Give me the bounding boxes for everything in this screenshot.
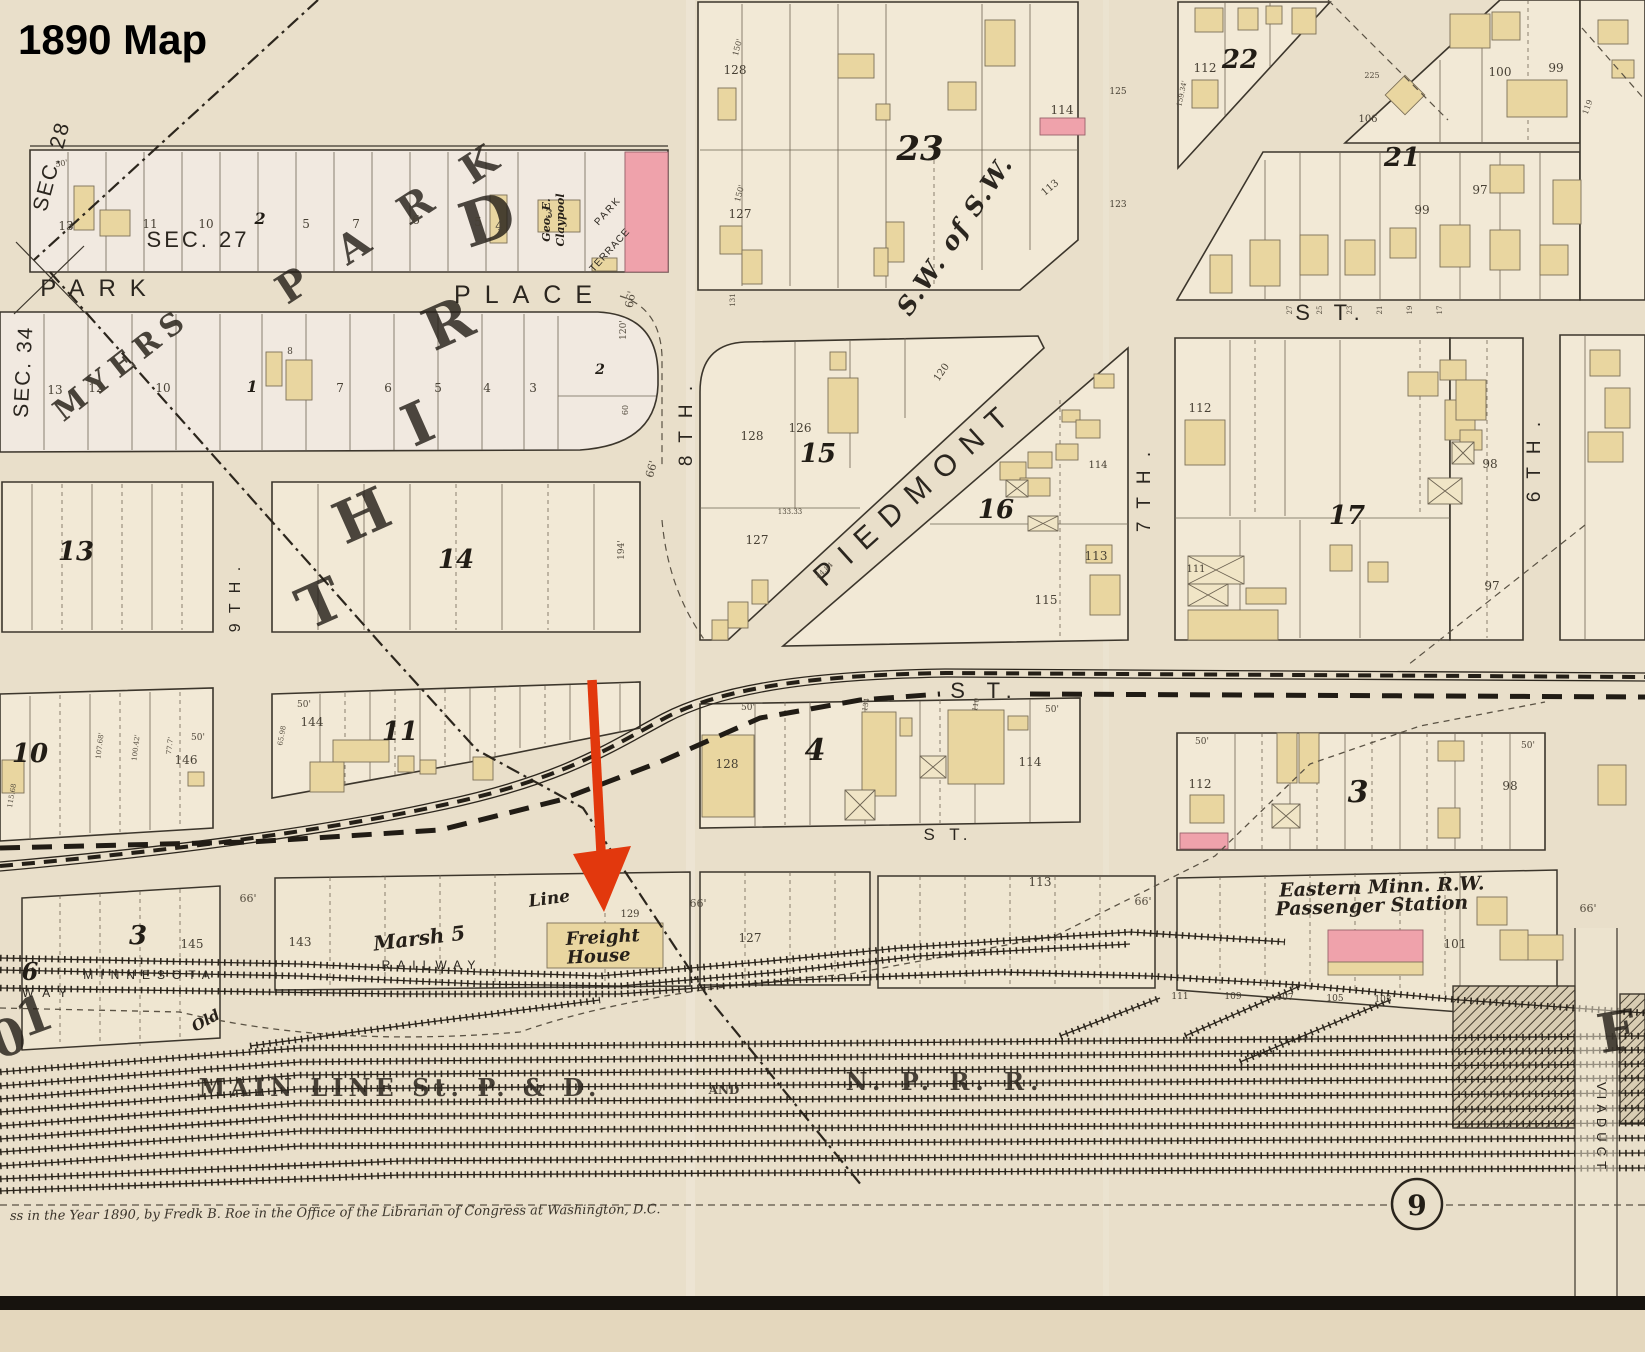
map-label: 12	[88, 381, 103, 395]
map-label: 13	[47, 383, 62, 397]
map-label: 4	[495, 219, 503, 233]
railway-label-railway: RAILWAY	[382, 958, 483, 972]
map-label: 143	[289, 935, 312, 949]
block-number-13: 13	[58, 537, 94, 567]
map-label: 19	[1406, 306, 1414, 315]
map-label: 146	[175, 753, 198, 767]
map-label: 128	[724, 63, 747, 77]
map-label: 50'	[1195, 737, 1209, 747]
section-label-34: SEC. 34	[10, 325, 38, 418]
map-page: PARKPLACES T.S T.S T.PIEDMONT8 T H .9 T …	[0, 0, 1645, 1352]
block-number-6: 6	[22, 957, 39, 986]
map-label: 133.33	[778, 508, 803, 516]
npr-label: N. P. R. R.	[846, 1067, 1045, 1096]
map-label: 66'	[1579, 902, 1596, 915]
block-number-23: 23	[895, 129, 943, 169]
block-number-4: 4	[805, 733, 826, 768]
map-label: 13	[58, 219, 73, 233]
street-label-st-lower: S T.	[924, 825, 973, 844]
map-label: 98	[1502, 779, 1517, 793]
map-label: 225	[1364, 71, 1379, 80]
map-label: 125	[1109, 87, 1126, 97]
map-label: 7	[336, 381, 344, 395]
map-label: 4	[483, 381, 491, 395]
paper-crease	[1103, 0, 1109, 1300]
crossed-shed	[1188, 584, 1228, 606]
map-label: 113	[1029, 875, 1052, 889]
block-number-10: 10	[12, 739, 48, 769]
map-label: 7	[352, 217, 360, 231]
crossed-shed	[1028, 516, 1058, 531]
map-label: 114	[1051, 103, 1074, 117]
street-label-st-top: S T.	[1295, 300, 1369, 325]
map-label: 5	[434, 381, 442, 395]
block-number-14: 14	[438, 545, 474, 575]
crossed-shed	[1452, 442, 1474, 464]
block-number-17: 17	[1329, 501, 1365, 531]
map-label: 101	[1444, 937, 1467, 951]
paper-margin	[0, 1310, 1645, 1352]
map-label: 50'	[741, 703, 755, 713]
map-label: AND	[708, 1083, 740, 1097]
map-label: 50'	[297, 700, 311, 710]
map-border-bar	[0, 1296, 1645, 1310]
map-label: 50'	[1521, 741, 1535, 751]
map-label: 50'	[191, 733, 205, 743]
map-label: 131	[729, 293, 737, 306]
map-label: 27	[1286, 306, 1294, 315]
map-label: 128	[741, 429, 764, 443]
map-label: 109	[1224, 992, 1241, 1002]
map-label: 127	[729, 207, 752, 221]
map-label: 97	[1484, 579, 1499, 593]
map-label: 60	[621, 405, 630, 415]
passenger-station-building	[1328, 930, 1423, 963]
block-number-15: 15	[800, 439, 836, 469]
map-label: 127	[739, 931, 762, 945]
railway-label-minnesota: MINNESOTA	[83, 968, 216, 982]
map-label: W A Y	[22, 986, 69, 1000]
freight-house-label-2: House	[565, 944, 631, 968]
map-label: 114	[1019, 755, 1042, 769]
map-label: 111	[1171, 992, 1188, 1002]
map-label: Claypool	[554, 194, 567, 247]
map-label: 127	[746, 533, 769, 547]
map-label: 66'	[689, 897, 706, 910]
map-label: 114	[1088, 460, 1107, 471]
map-label: 106	[1358, 114, 1377, 125]
map-label: 17	[1436, 306, 1444, 315]
map-label: 3	[529, 381, 537, 395]
map-label: 112	[1189, 401, 1212, 415]
map-title-overlay: 1890 Map	[18, 16, 207, 63]
crossed-shed	[1272, 804, 1300, 828]
map-label: 99	[1548, 61, 1563, 75]
map-label: 1	[246, 377, 257, 396]
street-label-9th: 9 T H .	[227, 564, 244, 632]
map-label: 2	[253, 209, 265, 228]
viaduct-label: VIADUCT	[1594, 1082, 1609, 1174]
block-number-16: 16	[978, 495, 1014, 525]
street-label-place: PLACE	[454, 281, 606, 309]
map-label: 112	[1189, 777, 1212, 791]
map-canvas: PARKPLACES T.S T.S T.PIEDMONT8 T H .9 T …	[0, 0, 1645, 1352]
map-label: 126	[789, 421, 812, 435]
map-label: 105	[1326, 994, 1343, 1004]
map-label: 100	[1489, 65, 1512, 79]
map-label: 129	[620, 909, 639, 920]
map-label: 115	[1035, 593, 1058, 607]
street-label-park: PARK	[40, 275, 160, 302]
map-label: 66'	[239, 892, 256, 905]
map-label: 194'	[617, 540, 627, 560]
crossed-shed	[920, 756, 946, 778]
block-number-22: 22	[1221, 45, 1258, 75]
map-label: 10	[198, 217, 213, 231]
map-label: 25	[1316, 306, 1324, 315]
map-label: 112	[1194, 61, 1217, 75]
map-label: 11	[142, 217, 157, 231]
map-label: 103	[1374, 995, 1391, 1005]
block-number-3-east: 3	[1348, 775, 1369, 810]
main-line-label: MAIN LINE St. P. & D.	[199, 1073, 602, 1102]
map-label: 107	[1276, 993, 1293, 1003]
map-label: 128	[716, 757, 739, 771]
street-label-6th: 6 T H .	[1524, 418, 1545, 502]
street-label-st-mid: S T.	[950, 678, 1020, 703]
park-terrace-building	[625, 152, 668, 272]
street-label-8th: 8 T H .	[676, 382, 697, 466]
crossed-shed	[1428, 478, 1462, 504]
block-number-11: 11	[382, 717, 418, 747]
map-label: 120'	[619, 320, 629, 340]
map-label: 6	[412, 213, 420, 227]
map-label: 66'	[1134, 895, 1151, 908]
street-label-7th: 7 T H .	[1134, 448, 1155, 532]
map-label: 3	[545, 207, 553, 221]
map-label: 123	[1109, 200, 1126, 210]
crossed-shed	[845, 790, 875, 820]
paper-crease	[686, 0, 695, 1300]
map-label: 97	[1472, 183, 1487, 197]
map-label: 50'	[1045, 705, 1059, 715]
map-label: 99	[1414, 203, 1429, 217]
map-label: 2	[594, 362, 605, 378]
block-number-3-west: 3	[129, 921, 147, 951]
svg-text:9: 9	[1407, 1189, 1426, 1222]
map-label: 21	[1376, 306, 1384, 315]
map-label: 5	[474, 215, 482, 229]
map-label: 145	[181, 937, 204, 951]
map-label: 111	[1186, 564, 1205, 575]
map-label: 23	[1346, 306, 1354, 315]
map-label: 6	[384, 381, 392, 395]
map-label: 144	[301, 715, 324, 729]
map-label: 113	[1085, 549, 1108, 563]
block-number-21: 21	[1383, 143, 1420, 173]
map-label: 10	[155, 381, 170, 395]
map-label: 98	[1482, 457, 1497, 471]
map-label: 5	[302, 217, 310, 231]
map-label: 8	[287, 347, 293, 357]
